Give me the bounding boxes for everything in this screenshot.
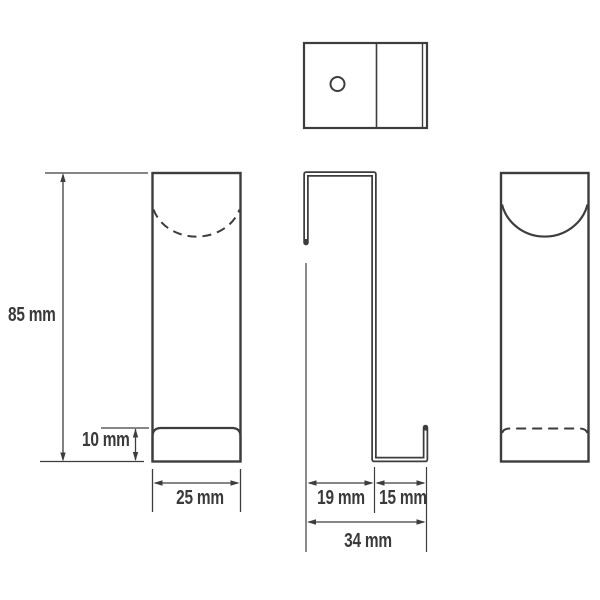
bottom-plate-hidden-line	[502, 429, 588, 434]
drawing-canvas	[0, 0, 600, 600]
side-view	[306, 174, 426, 460]
dim-height-label: 85 mm	[8, 305, 56, 325]
front-view-outline	[153, 173, 241, 462]
dim-height	[40, 173, 148, 462]
arrowhead-down-icon	[133, 452, 138, 461]
dim-hook-depth-label: 15 mm	[379, 488, 427, 508]
hook-bend-hidden-arc	[154, 210, 240, 237]
top-view-outline	[304, 43, 427, 128]
back-view-outline	[501, 173, 589, 462]
arrowhead-left-icon	[376, 480, 385, 485]
arrowhead-left-icon	[154, 480, 163, 485]
arrowhead-up-icon	[133, 429, 138, 438]
top-view	[304, 43, 427, 128]
arrowhead-down-icon	[60, 453, 65, 462]
arrowhead-up-icon	[60, 173, 65, 182]
screw-hole-icon	[331, 77, 345, 91]
bottom-plate-outline	[153, 428, 241, 460]
dim-width-label: 25 mm	[176, 488, 224, 508]
dim-total-depth-label: 34 mm	[344, 531, 392, 551]
hook-bend-arc	[502, 205, 588, 237]
arrowhead-left-icon	[308, 480, 317, 485]
front-view	[153, 173, 241, 462]
back-view	[501, 173, 589, 462]
side-profile	[306, 174, 426, 460]
arrowhead-left-icon	[307, 519, 316, 524]
dim-inner-depth-label: 19 mm	[317, 488, 365, 508]
side-profile-core	[306, 174, 426, 460]
arrowhead-right-icon	[365, 480, 374, 485]
arrowhead-right-icon	[231, 480, 240, 485]
dim-plate-label: 10 mm	[82, 430, 130, 450]
arrowhead-right-icon	[417, 480, 426, 485]
arrowhead-right-icon	[417, 519, 426, 524]
technical-drawing: 85 mm 10 mm 25 mm 19 mm 15 mm 34 mm	[0, 0, 600, 600]
